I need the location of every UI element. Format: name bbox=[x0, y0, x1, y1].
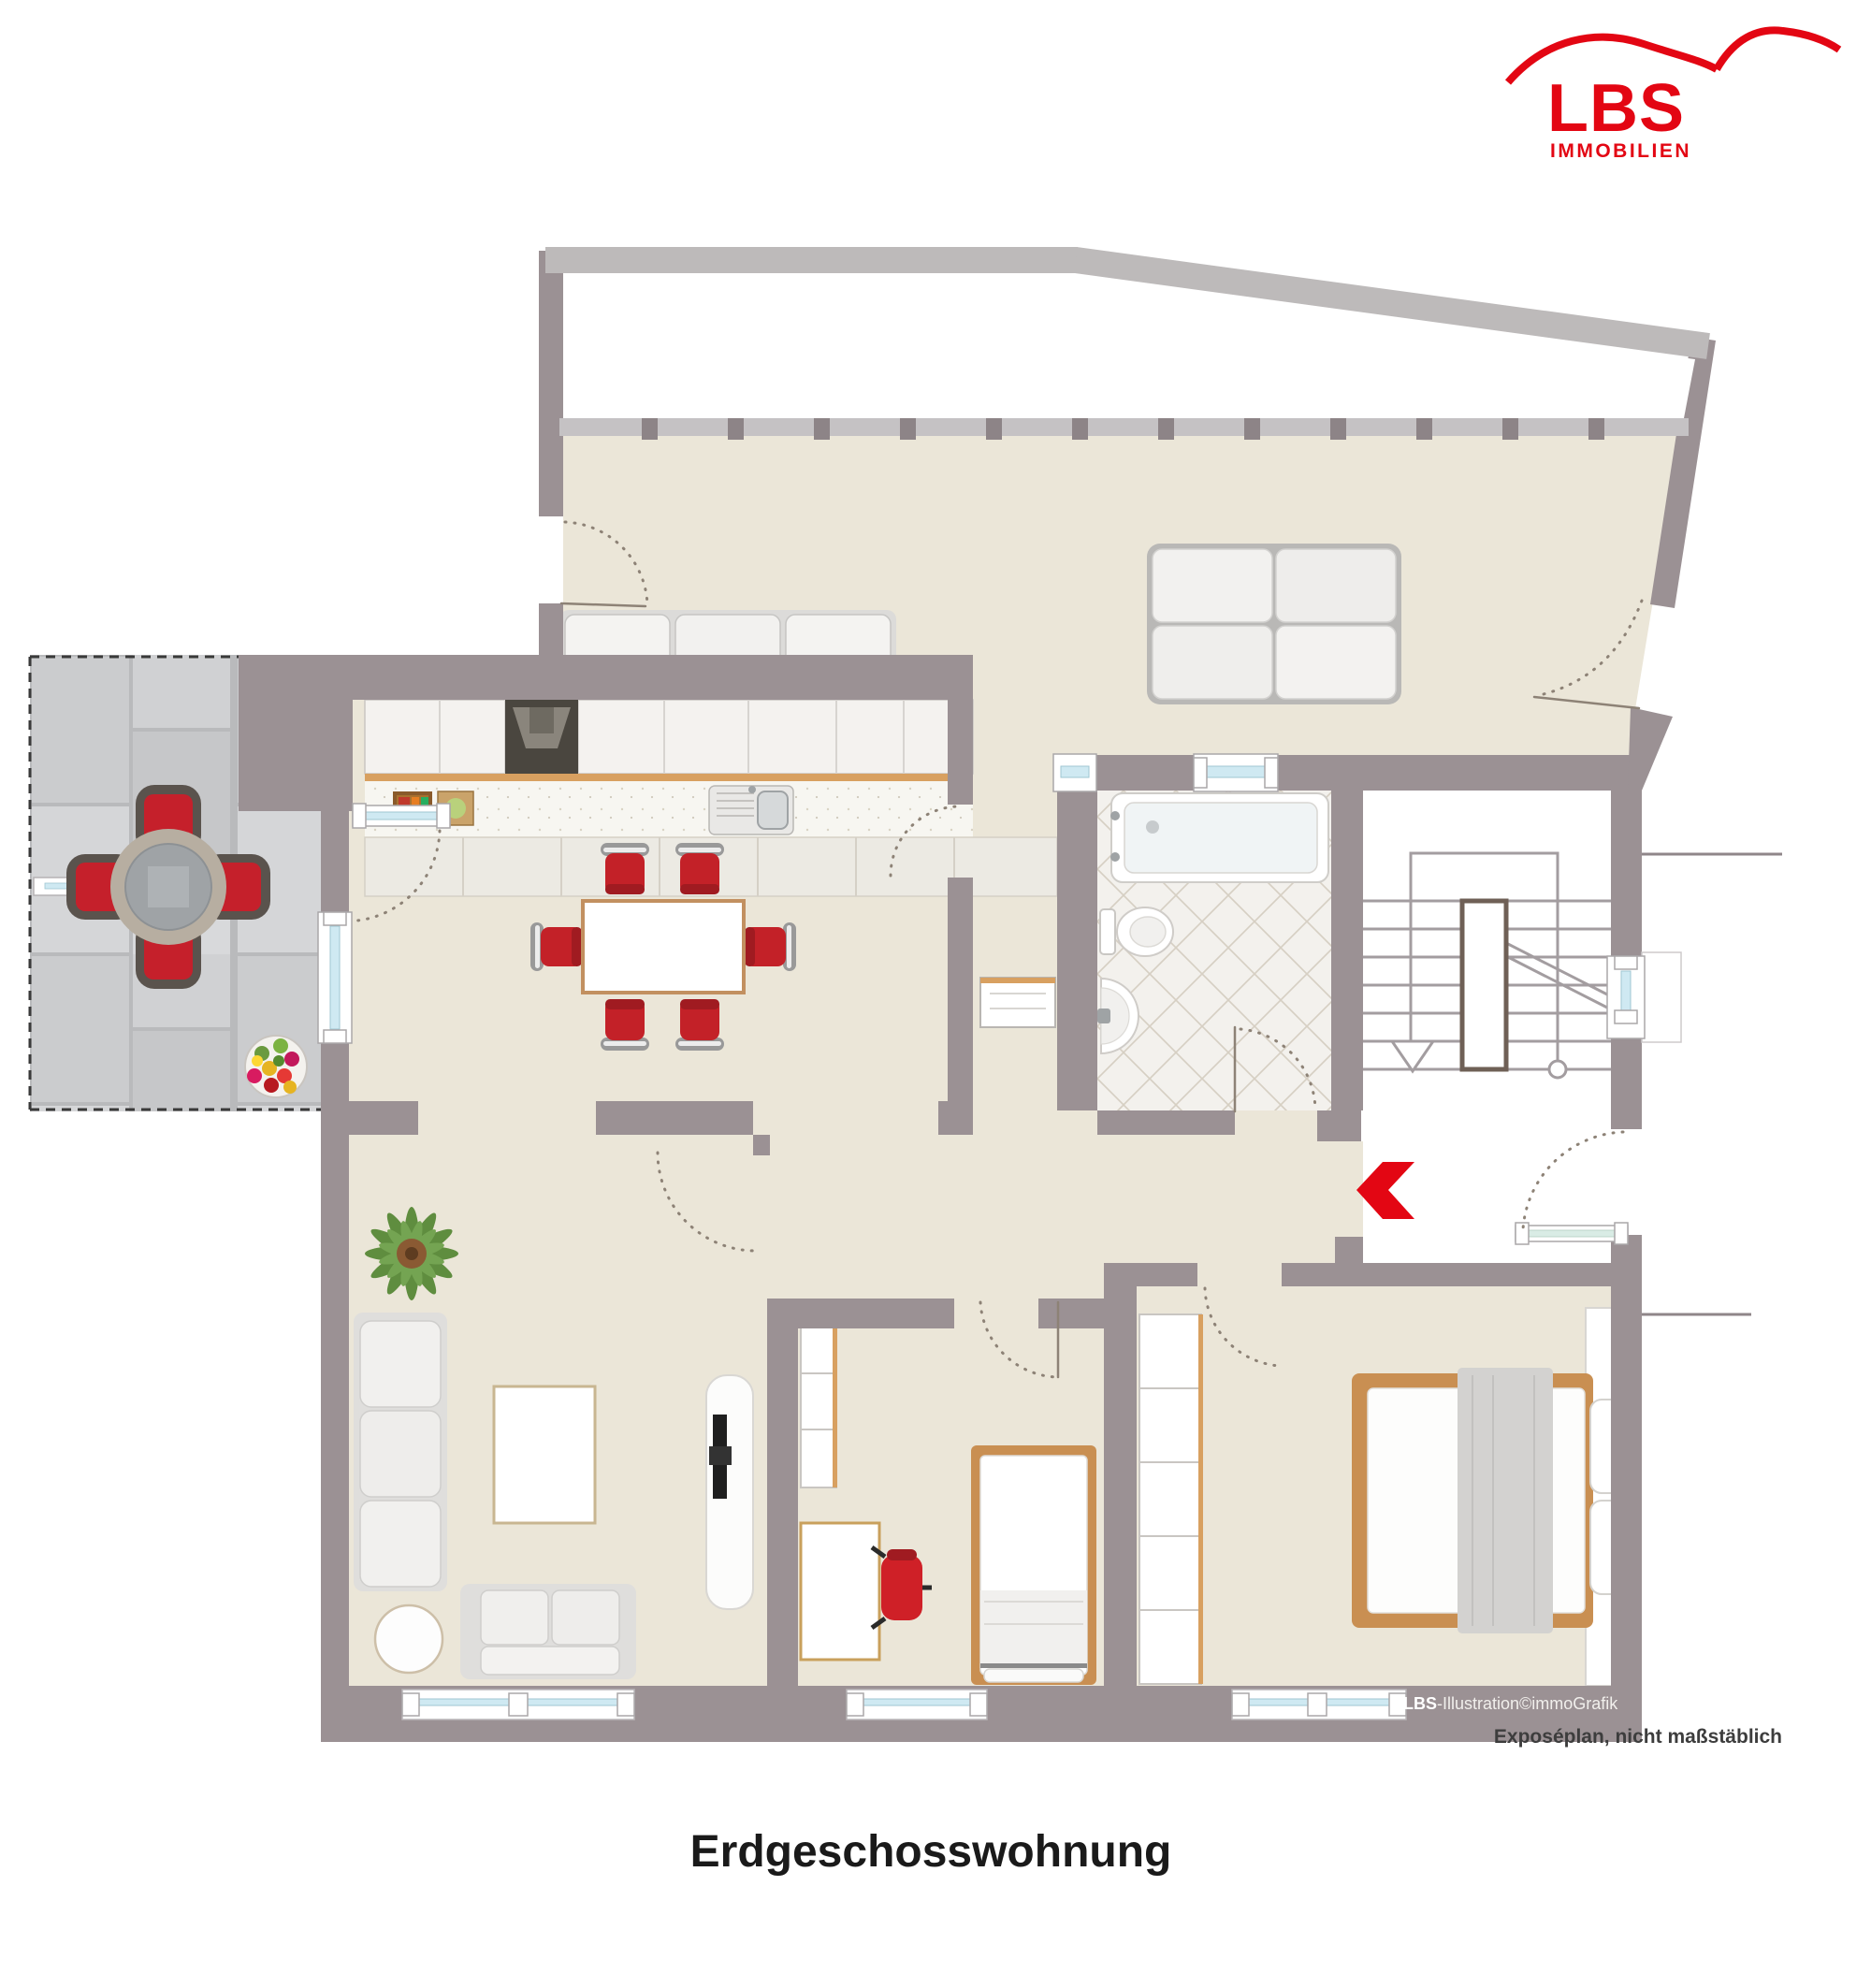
terrace-round-table bbox=[110, 829, 226, 945]
toilet bbox=[1100, 907, 1173, 956]
section-lines bbox=[1642, 854, 1782, 1314]
wall-bedroom-east bbox=[1611, 1235, 1642, 1693]
entry-door-leaf bbox=[1516, 1223, 1628, 1244]
dining-table bbox=[583, 901, 744, 993]
wall-terrace-east-b bbox=[321, 1037, 349, 1113]
niche-floor bbox=[973, 700, 1057, 1110]
tv-sideboard bbox=[706, 1375, 753, 1609]
single-bed bbox=[971, 1445, 1096, 1685]
wall-childroom-west bbox=[767, 1299, 798, 1693]
wall-dining-east-top bbox=[948, 700, 973, 805]
logo-subtext: IMMOBILIEN bbox=[1550, 140, 1691, 162]
wall-terrace-east-a bbox=[321, 811, 349, 919]
outer-wall-top bbox=[545, 247, 1078, 273]
wall-bathroom-north bbox=[1057, 755, 1642, 791]
wardrobe bbox=[1139, 1314, 1203, 1684]
wall-corner-se bbox=[1628, 707, 1673, 791]
window-staircase bbox=[1607, 952, 1681, 1042]
page-title: Erdgeschosswohnung bbox=[690, 1827, 1172, 1877]
sofa-3-seat-living bbox=[354, 1313, 447, 1591]
desk bbox=[801, 1523, 879, 1660]
counter-wood-edge bbox=[365, 774, 973, 781]
sofa-2-seat-living bbox=[460, 1584, 636, 1679]
window-childroom bbox=[847, 1690, 987, 1720]
bathtub bbox=[1110, 793, 1328, 882]
wall-toproom-west bbox=[539, 251, 563, 516]
shelf-unit bbox=[801, 1317, 837, 1487]
disclaimer: Exposéplan, nicht maßstäblich bbox=[1494, 1726, 1782, 1748]
window-terrace bbox=[318, 912, 352, 1043]
wall-kitchen-north bbox=[239, 655, 973, 700]
wall-dining-east bbox=[948, 878, 973, 1135]
floor-plan-svg: LBS-Illustration©immoGrafik Exposéplan, … bbox=[0, 0, 1871, 1988]
wall-childroom-east bbox=[1104, 1263, 1137, 1693]
wall-corner-column bbox=[239, 700, 353, 811]
wall-bedroom-north bbox=[1282, 1263, 1642, 1286]
terrace-door-leaf bbox=[353, 804, 450, 828]
sofa-2x2-lounge bbox=[1147, 544, 1401, 704]
hall-cabinet bbox=[980, 978, 1055, 1027]
rug bbox=[494, 1386, 595, 1523]
garden-terrace-top bbox=[545, 247, 1708, 440]
wall-bathroom-west bbox=[1057, 755, 1097, 1110]
extractor-stove bbox=[505, 700, 578, 786]
window-bedroom bbox=[1232, 1690, 1406, 1720]
wall-staircase-west bbox=[1331, 791, 1363, 1110]
side-table-round bbox=[375, 1605, 442, 1673]
flower-pot bbox=[245, 1036, 307, 1097]
stair-newel bbox=[1462, 901, 1506, 1069]
lbs-logo: LBS IMMOBILIEN bbox=[1508, 30, 1839, 162]
kitchen-sink bbox=[709, 786, 793, 834]
logo-text: LBS bbox=[1547, 71, 1685, 146]
window-living bbox=[402, 1690, 634, 1720]
page: LBS-Illustration©immoGrafik Exposéplan, … bbox=[0, 0, 1871, 1988]
window-bathroom-1 bbox=[1053, 754, 1096, 791]
wall-bathroom-south bbox=[1097, 1110, 1235, 1135]
illustration-credit: LBS-Illustration©immoGrafik bbox=[1403, 1694, 1618, 1713]
wall-living-west bbox=[321, 1113, 349, 1693]
window-bathroom-2 bbox=[1194, 754, 1278, 791]
wall-staircase-east-a bbox=[1611, 791, 1642, 964]
